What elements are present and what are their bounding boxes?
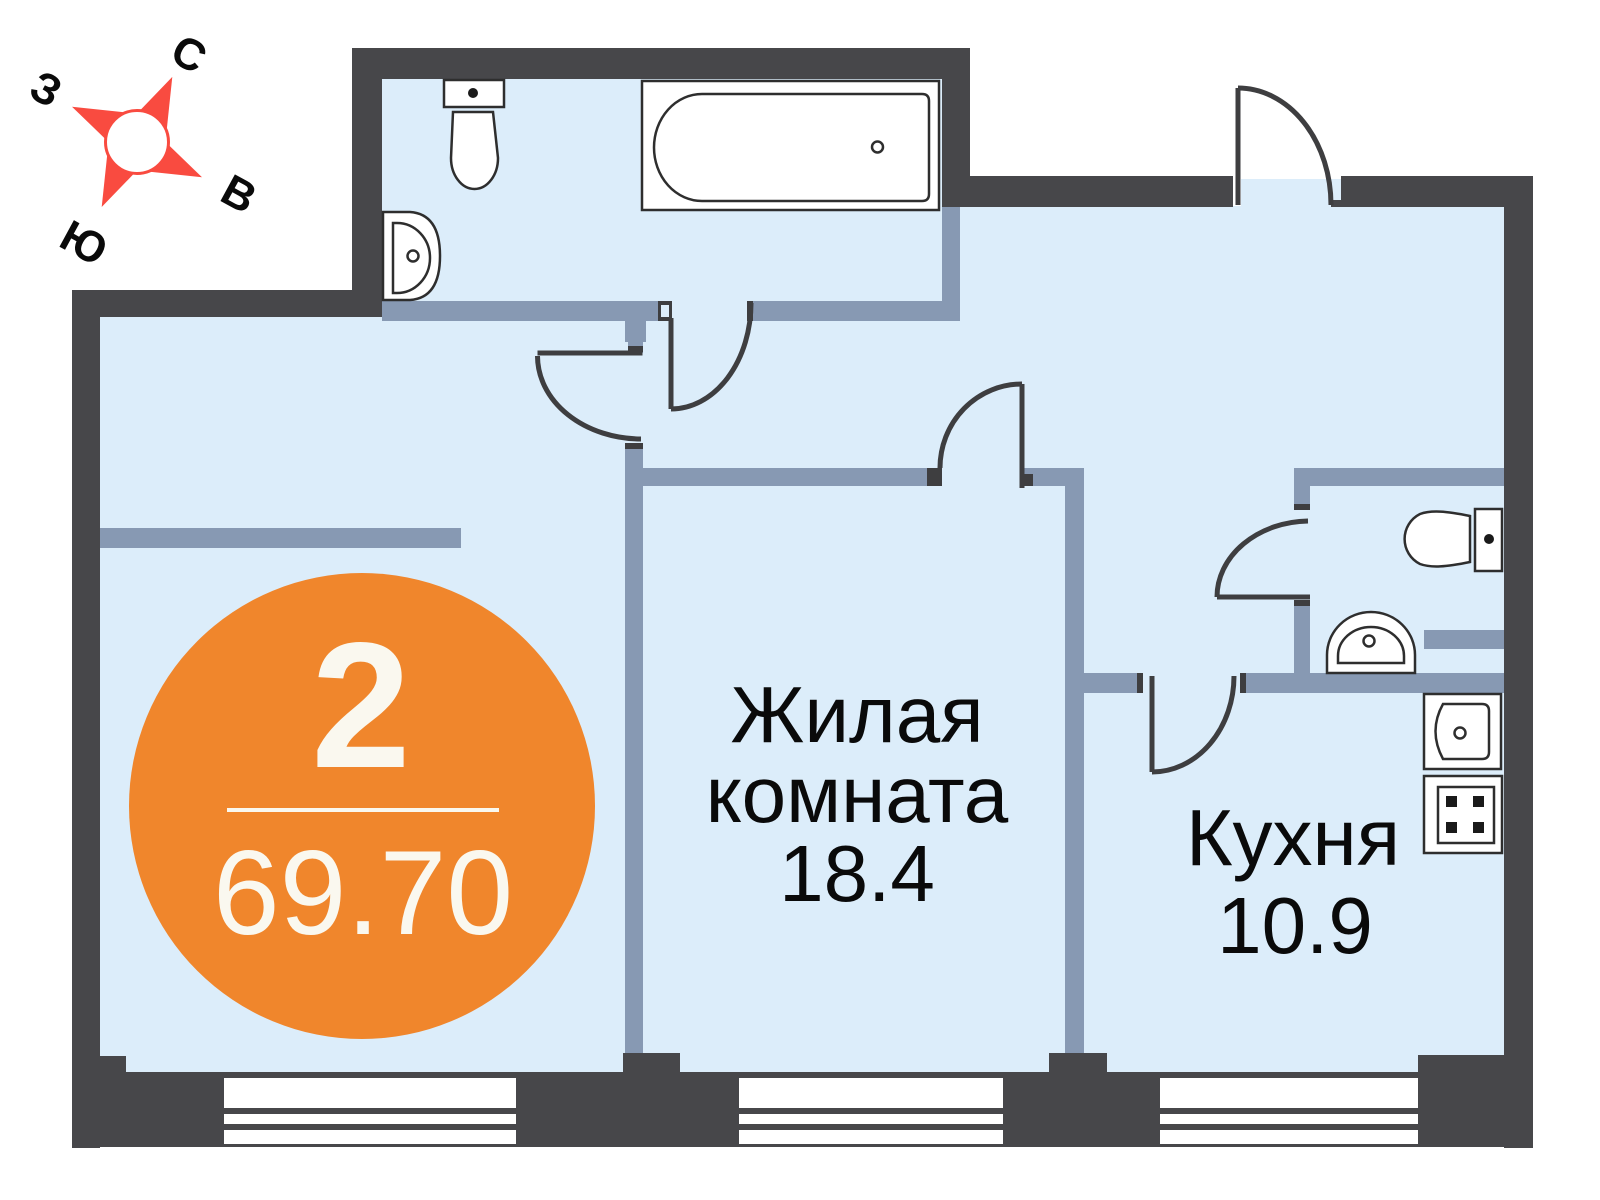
svg-text:комната: комната [706, 750, 1009, 839]
svg-text:69.70: 69.70 [213, 826, 513, 960]
svg-text:2: 2 [311, 605, 411, 805]
svg-text:10.9: 10.9 [1217, 881, 1373, 970]
svg-text:Жилая: Жилая [730, 670, 983, 759]
svg-text:Кухня: Кухня [1186, 793, 1400, 882]
svg-text:18.4: 18.4 [779, 829, 935, 918]
